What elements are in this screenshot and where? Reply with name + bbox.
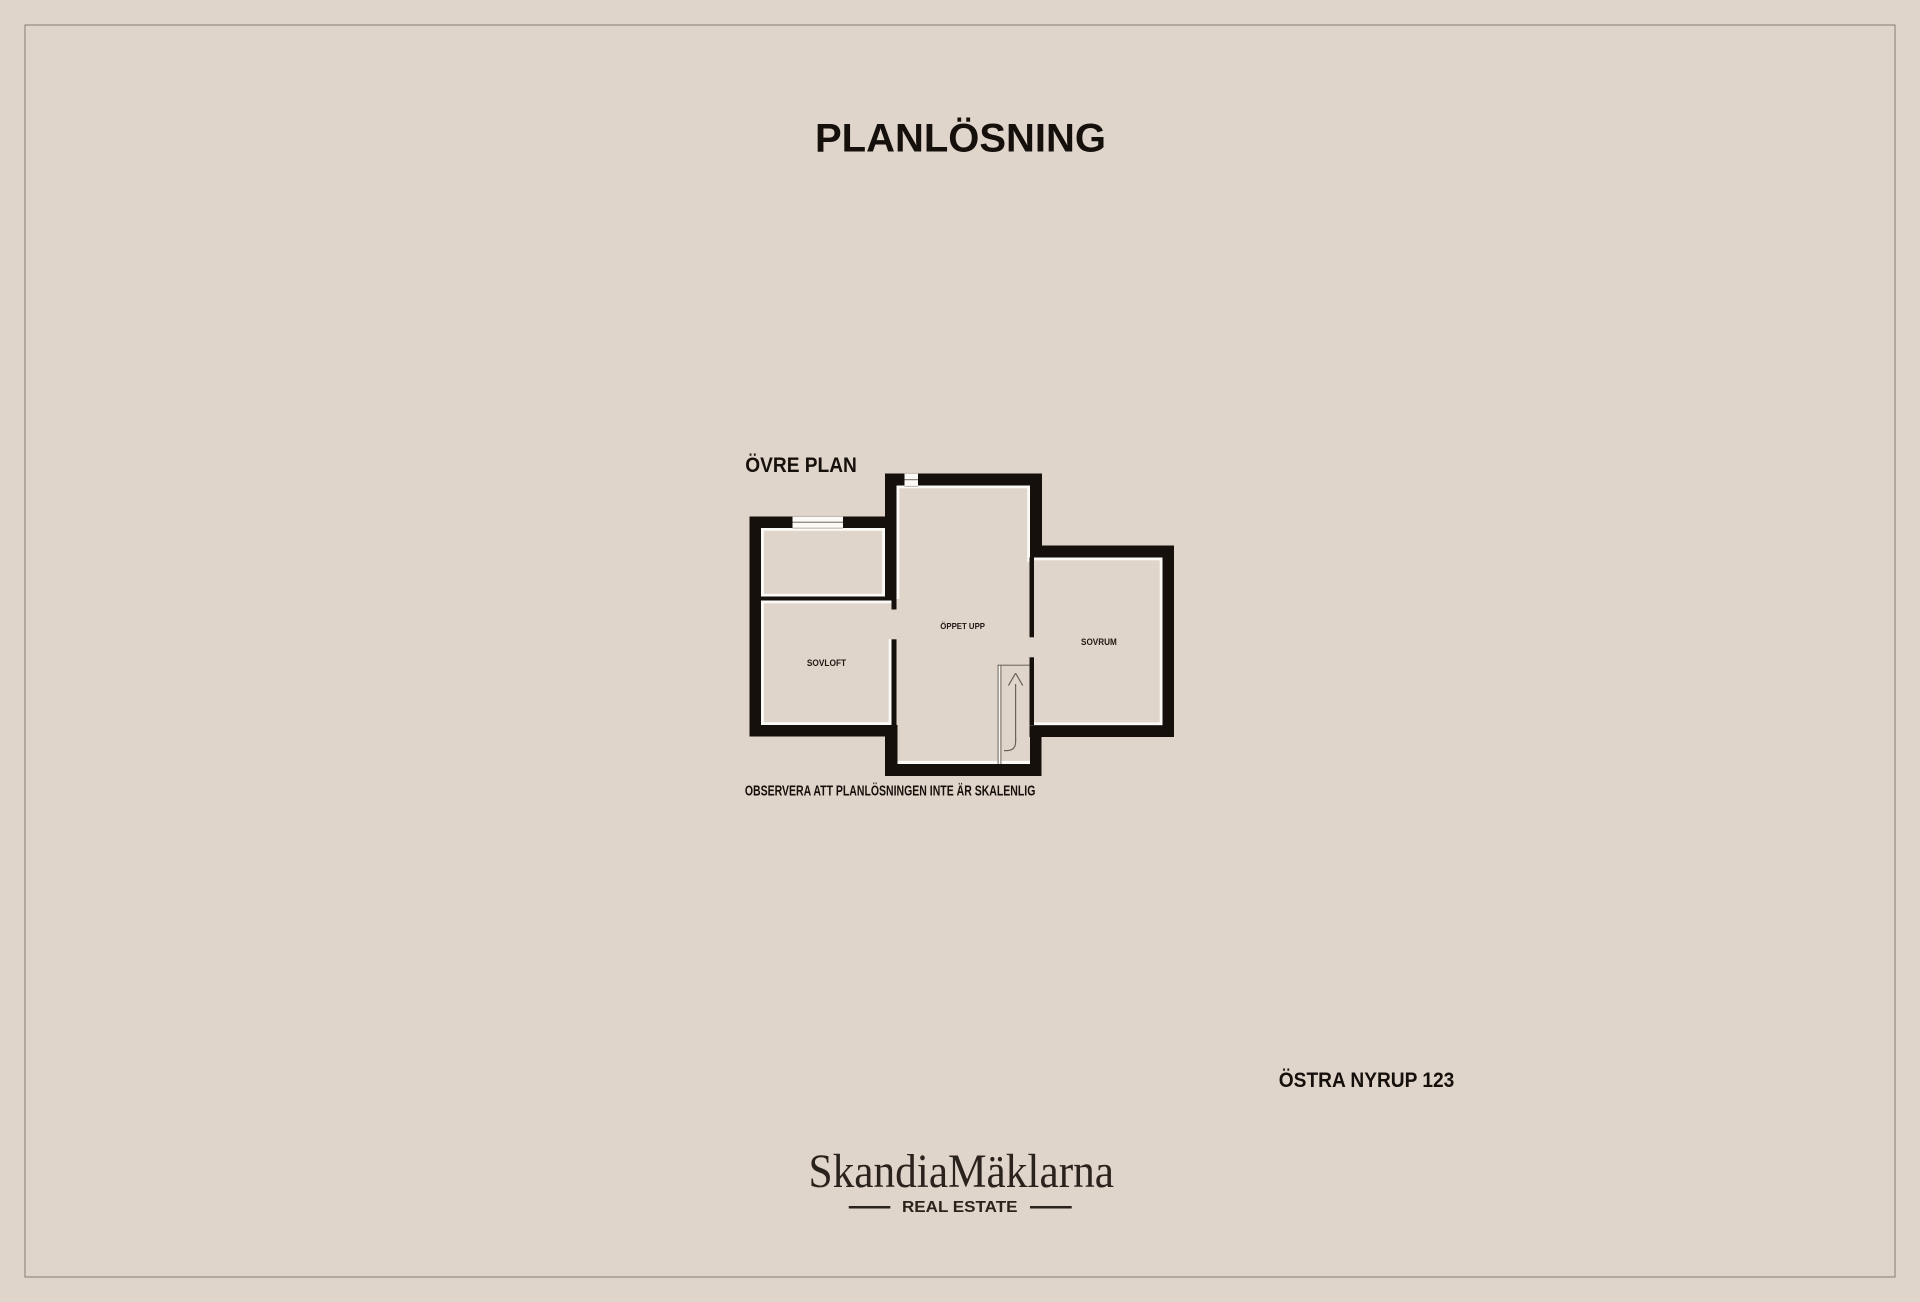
svg-text:SOVLOFT: SOVLOFT (807, 658, 846, 668)
svg-text:ÖSTRA NYRUP 123: ÖSTRA NYRUP 123 (1279, 1069, 1455, 1092)
svg-text:OBSERVERA ATT PLANLÖSNINGEN IN: OBSERVERA ATT PLANLÖSNINGEN INTE ÄR SKAL… (745, 782, 1036, 799)
svg-text:PLANLÖSNING: PLANLÖSNING (815, 117, 1106, 161)
svg-text:ÖPPET UPP: ÖPPET UPP (940, 621, 985, 631)
svg-text:SkandiaMäklarna: SkandiaMäklarna (809, 1145, 1115, 1198)
svg-text:SOVRUM: SOVRUM (1081, 637, 1117, 647)
svg-text:REAL ESTATE: REAL ESTATE (902, 1199, 1018, 1216)
svg-text:ÖVRE PLAN: ÖVRE PLAN (745, 452, 857, 477)
